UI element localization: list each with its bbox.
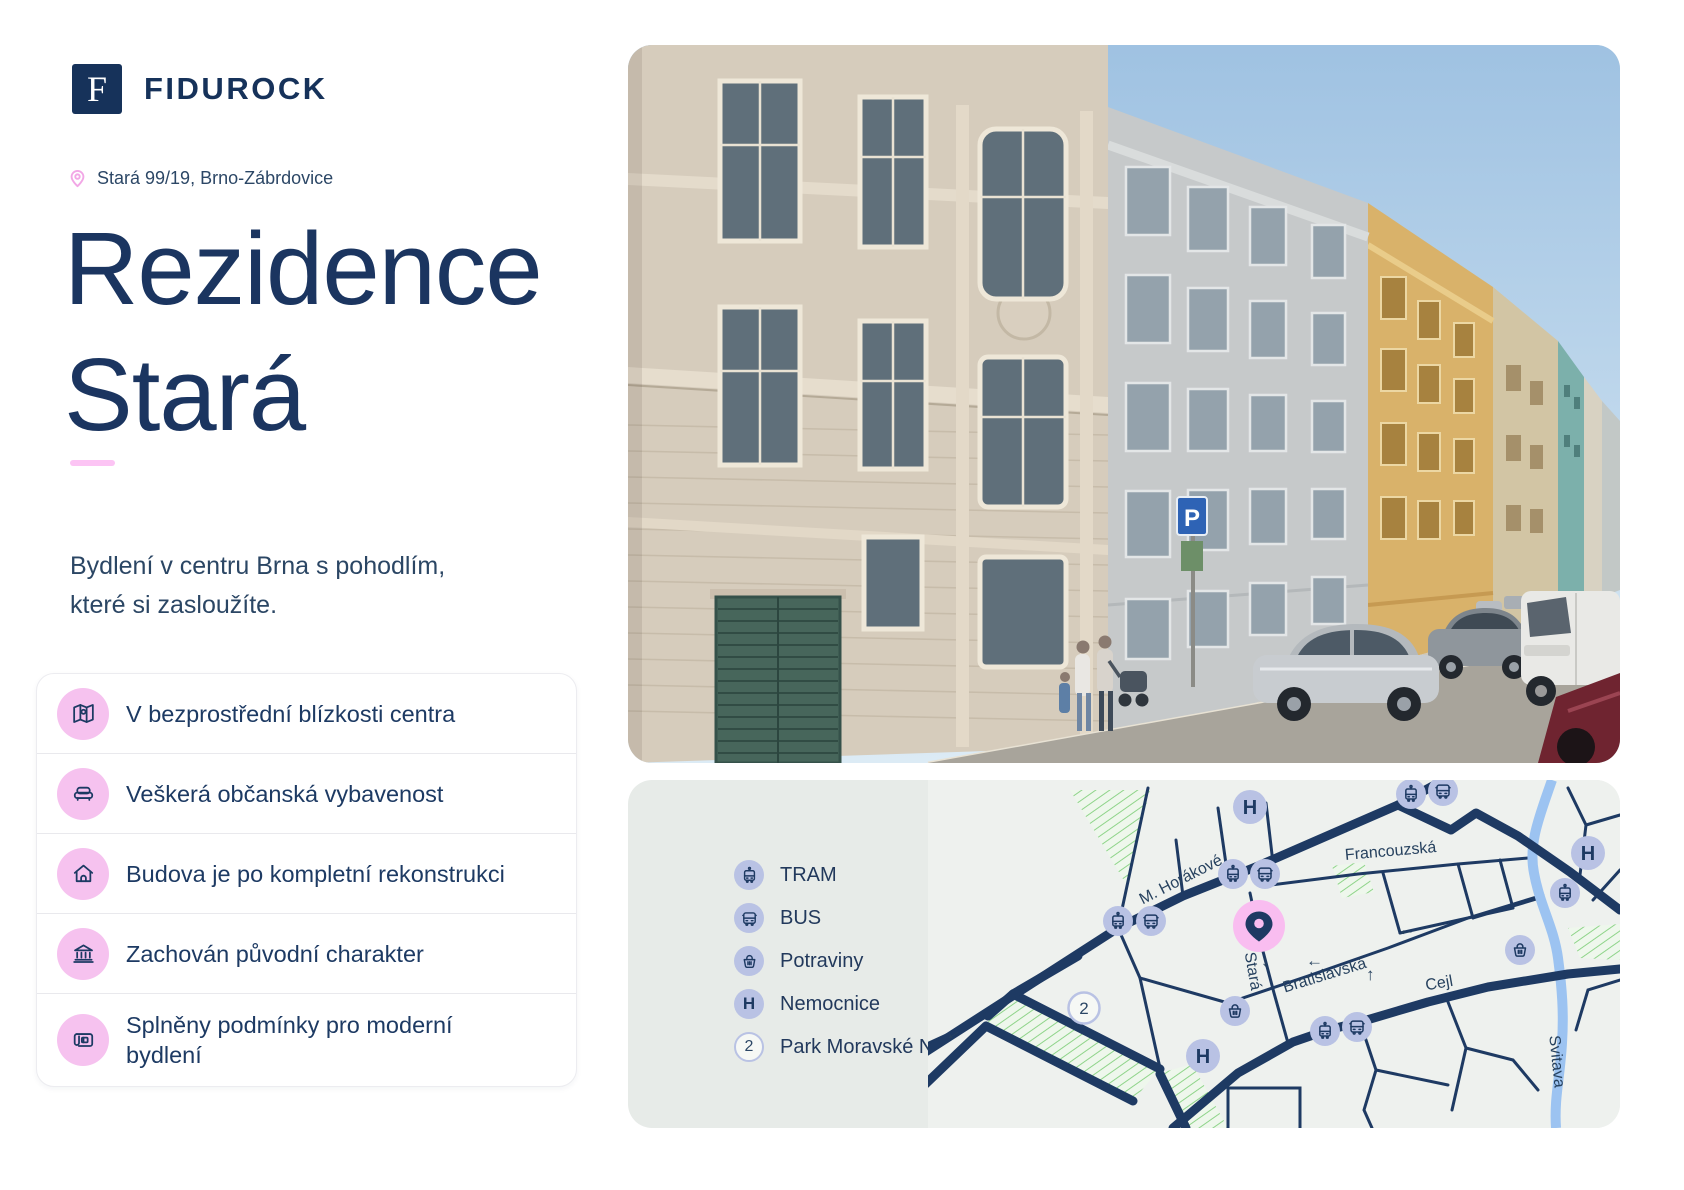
svg-text:2: 2 [1079,999,1088,1018]
page-subtitle: Bydlení v centru Brna s pohodlím, které … [70,547,445,625]
sofa-icon [57,768,109,820]
page-title: Rezidence Stará [64,206,542,458]
park-number-marker: 2 [734,1032,764,1062]
feature-label: Budova je po kompletní rekonstrukci [126,859,505,889]
bus-icon [1342,1012,1372,1042]
legend-label: Potraviny [780,950,863,973]
green-door [716,597,840,763]
tram-icon [1310,1016,1340,1046]
tram-icon [1218,859,1248,889]
legend-label: TRAM [780,864,837,887]
hospital-icon: H [1186,1039,1220,1073]
hospital-icon: H [734,989,764,1019]
blueprint-icon [57,1014,109,1066]
svg-text:H: H [1196,1046,1210,1068]
hospital-icon: H [1571,836,1605,870]
address-text: Stará 99/19, Brno-Zábrdovice [97,168,333,189]
grocery-basket-icon [1220,996,1250,1026]
feature-label: Zachován původní charakter [126,939,424,969]
property-address: Stará 99/19, Brno-Zábrdovice [68,168,333,189]
accent-divider [70,460,115,466]
legend-label: Nemocnice [780,993,880,1016]
arrow-down: ↓ [1261,951,1270,970]
grocery-basket-icon [734,946,764,976]
tram-icon [1550,878,1580,908]
house-icon [57,848,109,900]
feature-label: Veškerá občanská vybavenost [126,779,443,809]
map-illustration: M. Horákové Francouzská Stará Bratislavs… [928,780,1620,1128]
feature-label: V bezprostřední blízkosti centra [126,699,455,729]
bus-icon [1136,906,1166,936]
bank-icon [57,928,109,980]
brand-logo-mark: F [72,64,122,114]
feature-row-reconstruction: Budova je po kompletní rekonstrukci [37,833,576,913]
tram-icon [734,860,764,890]
hospital-icon: H [1233,790,1267,824]
street-photo-illustration: P [628,45,1620,763]
parking-sign-letter: P [1184,505,1200,532]
feature-row-character: Zachován původní charakter [37,913,576,993]
feature-row-centre: V bezprostřední blízkosti centra [37,674,576,753]
feature-row-amenities: Veškerá občanská vybavenost [37,753,576,833]
location-pin-icon [68,169,87,188]
page-title-line2: Stará [64,332,542,458]
property-location-pin [1233,900,1285,952]
arrow-left: ← [1306,951,1323,970]
park-number-marker: 2 [1069,993,1100,1024]
bus-icon [1250,859,1280,889]
svg-text:H: H [1581,843,1595,865]
svg-text:H: H [1243,797,1257,819]
tram-icon [1103,906,1133,936]
feature-label-line1: Splněny podmínky pro moderní [126,1010,453,1040]
subtitle-line2: které si zasloužíte. [70,586,445,625]
legend-label: BUS [780,907,821,930]
map-location-icon [57,688,109,740]
bus-icon [734,903,764,933]
subtitle-line1: Bydlení v centru Brna s pohodlím, [70,547,445,586]
building-photo: P [628,45,1620,763]
tram-icon [1396,780,1426,809]
cream-building [628,45,1108,763]
grocery-basket-icon [1505,935,1535,965]
landing-page: F FIDUROCK Stará 99/19, Brno-Zábrdovice … [0,0,1684,1190]
page-title-line1: Rezidence [64,206,542,332]
feature-label: Splněny podmínky pro moderní bydlení [126,1010,453,1070]
brand-name: FIDUROCK [144,71,328,107]
brand-logo: F FIDUROCK [72,64,328,114]
map-card: TRAM BUS Potraviny H Nemocnice 2 Park Mo… [628,780,1620,1128]
features-card: V bezprostřední blízkosti centra Veškerá… [36,673,577,1087]
feature-label-line2: bydlení [126,1040,453,1070]
arrow-left: ← [1398,920,1415,939]
brand-logo-letter: F [87,68,107,110]
feature-row-modern: Splněny podmínky pro moderní bydlení [37,993,576,1086]
arrow-up: ↑ [1366,965,1375,984]
